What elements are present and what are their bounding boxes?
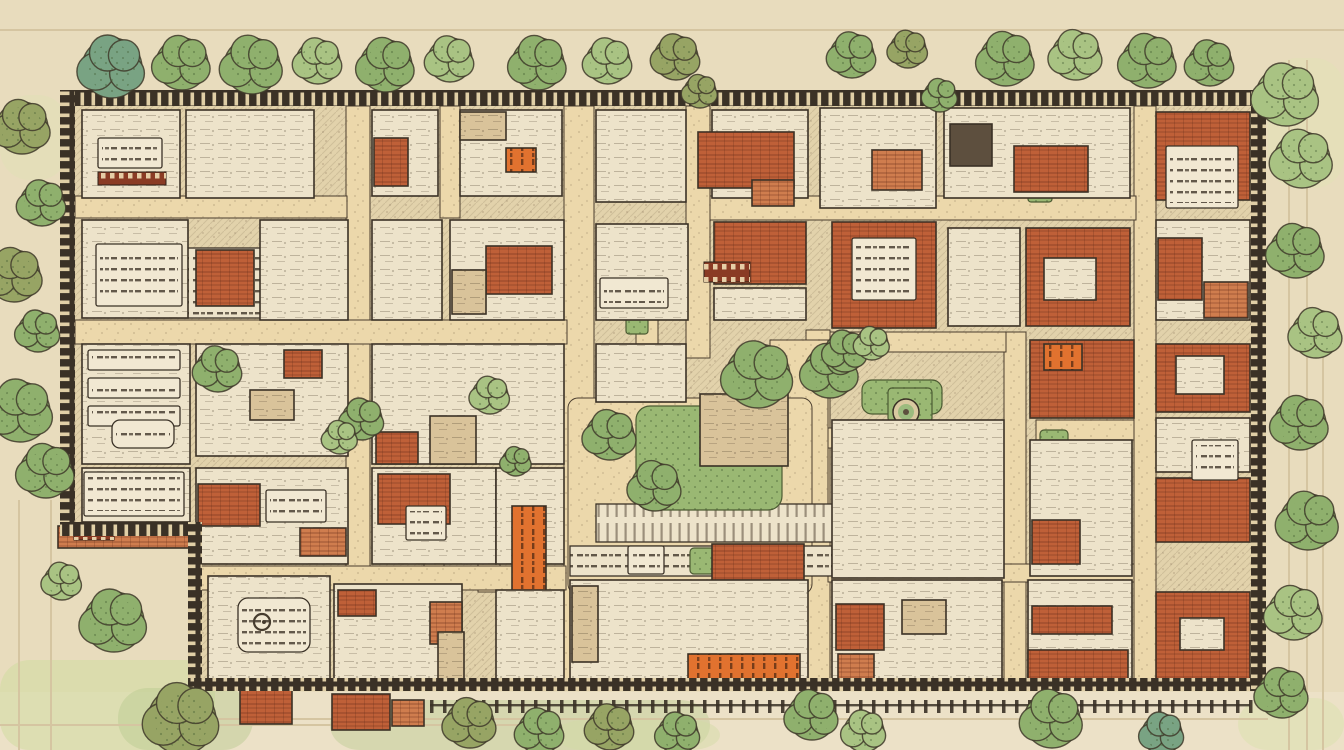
faint-road-line xyxy=(50,500,52,750)
texture-overlay xyxy=(430,416,476,464)
texture-overlay xyxy=(88,477,180,511)
texture-overlay xyxy=(506,148,536,172)
tree-stipple xyxy=(24,186,59,221)
fence-post xyxy=(1158,700,1162,713)
fence-post xyxy=(924,700,928,713)
fountain-pond-core xyxy=(903,409,909,415)
texture-overlay xyxy=(714,288,806,320)
fence-post xyxy=(521,700,525,713)
texture-overlay xyxy=(856,243,912,295)
texture-overlay xyxy=(100,249,178,301)
texture-overlay xyxy=(452,270,486,314)
fence-post xyxy=(638,700,642,713)
tree-stipple xyxy=(161,43,203,85)
texture-overlay xyxy=(836,604,884,650)
texture-overlay xyxy=(270,495,322,517)
tree-stipple xyxy=(1280,138,1325,183)
tree-stipple xyxy=(230,44,275,89)
tree-stipple xyxy=(590,44,625,79)
tree-stipple xyxy=(327,425,353,451)
texture-overlay xyxy=(1028,650,1128,680)
texture-overlay xyxy=(1176,356,1224,394)
texture-overlay xyxy=(198,484,260,526)
fence-post xyxy=(1184,700,1188,713)
texture-overlay xyxy=(460,112,506,140)
texture-overlay xyxy=(438,632,464,680)
plaque-emblem-dot xyxy=(262,620,266,624)
tree-stipple xyxy=(793,697,831,735)
building-dark xyxy=(950,124,992,166)
texture-overlay xyxy=(92,355,176,365)
tree-stipple xyxy=(1057,37,1095,75)
tree-stipple xyxy=(505,451,527,473)
fence-post xyxy=(950,700,954,713)
texture-overlay xyxy=(1251,90,1266,691)
fence-post xyxy=(1015,700,1019,713)
fence-post xyxy=(651,700,655,713)
fence-post xyxy=(690,700,694,713)
fence-rail xyxy=(430,704,1250,706)
tree xyxy=(0,99,50,154)
texture-overlay xyxy=(1158,238,1202,300)
texture-overlay xyxy=(752,180,794,206)
tree-stipple xyxy=(894,36,923,65)
texture-overlay xyxy=(188,522,202,692)
texture-overlay xyxy=(1044,258,1096,300)
tree-stipple xyxy=(662,718,694,750)
texture-overlay xyxy=(572,586,598,662)
fence-post xyxy=(1236,700,1240,713)
fence-post xyxy=(781,700,785,713)
texture-overlay xyxy=(1014,146,1088,192)
fence-post xyxy=(911,700,915,713)
tree-stipple xyxy=(1127,41,1169,83)
tree-stipple xyxy=(155,693,209,747)
fence-post xyxy=(495,700,499,713)
texture-overlay xyxy=(92,383,176,393)
fence-post xyxy=(703,700,707,713)
fence-post xyxy=(664,700,668,713)
tree-stipple xyxy=(300,44,335,79)
texture-overlay xyxy=(98,172,166,185)
texture-overlay xyxy=(948,228,1020,326)
tree-stipple xyxy=(1030,698,1075,743)
fence-post xyxy=(508,700,512,713)
texture-overlay xyxy=(902,600,946,634)
fence-post xyxy=(1080,700,1084,713)
tree-stipple xyxy=(90,598,138,646)
texture-overlay xyxy=(838,654,874,680)
texture-overlay xyxy=(186,110,314,198)
fence-post xyxy=(560,700,564,713)
fence-post xyxy=(846,700,850,713)
fence-post xyxy=(937,700,941,713)
fence-post xyxy=(573,700,577,713)
texture-overlay xyxy=(1032,606,1112,634)
tree-stipple xyxy=(1263,675,1301,713)
texture-overlay xyxy=(242,603,306,647)
fence-post xyxy=(742,700,746,713)
texture-overlay xyxy=(102,143,158,163)
tree-stipple xyxy=(859,331,885,357)
fence-post xyxy=(1210,700,1214,713)
fence-post xyxy=(430,700,434,713)
texture-overlay xyxy=(440,106,460,218)
fence-post xyxy=(1093,700,1097,713)
tree-stipple xyxy=(1297,315,1335,353)
village-site-plan xyxy=(0,0,1344,750)
fence-post xyxy=(1119,700,1123,713)
texture-overlay xyxy=(60,522,202,536)
fence-post xyxy=(755,700,759,713)
texture-overlay xyxy=(300,528,346,556)
texture-overlay xyxy=(284,350,322,378)
tree-stipple xyxy=(591,417,629,455)
tree-stipple xyxy=(1146,718,1178,750)
fence-post xyxy=(729,700,733,713)
texture-overlay xyxy=(372,220,442,320)
texture-overlay xyxy=(75,196,347,218)
faint-road-line xyxy=(0,29,1344,31)
texture-overlay xyxy=(712,544,804,582)
texture-overlay xyxy=(496,590,564,688)
texture-overlay xyxy=(1032,520,1080,564)
tree-stipple xyxy=(365,45,407,87)
fence-post xyxy=(1223,700,1227,713)
fence-post xyxy=(963,700,967,713)
texture-overlay xyxy=(832,420,1004,578)
tree-stipple xyxy=(48,568,77,597)
texture-overlay xyxy=(1004,332,1026,690)
texture-overlay xyxy=(486,246,552,294)
fence-post xyxy=(716,700,720,713)
texture-overlay xyxy=(188,678,1266,691)
texture-overlay xyxy=(604,283,664,303)
fence-post xyxy=(768,700,772,713)
tree-stipple xyxy=(200,352,235,387)
tree-stipple xyxy=(1286,500,1331,545)
tree-stipple xyxy=(848,716,880,748)
tree-stipple xyxy=(451,705,489,743)
texture-overlay xyxy=(512,506,546,592)
tree-stipple xyxy=(517,43,559,85)
tree-stipple xyxy=(636,468,674,506)
tree-stipple xyxy=(687,79,713,105)
texture-overlay xyxy=(1180,618,1224,650)
tree-stipple xyxy=(658,40,693,75)
tree-stipple xyxy=(22,316,54,348)
fence-post xyxy=(1145,700,1149,713)
texture-overlay xyxy=(332,694,390,730)
tree-stipple xyxy=(1279,403,1321,445)
fence-post xyxy=(1002,700,1006,713)
texture-overlay xyxy=(260,220,348,320)
texture-overlay xyxy=(250,390,294,420)
fence-post xyxy=(989,700,993,713)
texture-overlay xyxy=(1170,151,1234,203)
faint-road-line xyxy=(18,500,20,750)
texture-overlay xyxy=(632,551,660,569)
tree-stipple xyxy=(592,710,627,745)
tree-stipple xyxy=(732,350,783,401)
texture-overlay xyxy=(596,110,686,202)
fence-post xyxy=(443,700,447,713)
texture-overlay xyxy=(1196,445,1234,475)
texture-overlay xyxy=(240,690,292,724)
fence-post xyxy=(1171,700,1175,713)
texture-overlay xyxy=(338,590,376,616)
fence-post xyxy=(677,700,681,713)
tree-stipple xyxy=(1273,593,1315,635)
fence-post xyxy=(586,700,590,713)
fence-post xyxy=(1106,700,1110,713)
tree-stipple xyxy=(476,382,505,411)
tree-stipple xyxy=(985,39,1027,81)
texture-overlay xyxy=(704,262,750,282)
texture-overlay xyxy=(374,138,408,186)
fence-post xyxy=(898,700,902,713)
fence-post xyxy=(885,700,889,713)
texture-overlay xyxy=(1204,282,1248,318)
texture-overlay xyxy=(1044,344,1082,370)
fence-post xyxy=(1249,700,1253,713)
texture-overlay xyxy=(410,511,442,535)
texture-overlay xyxy=(872,150,922,190)
screenshot-root xyxy=(0,0,1344,750)
texture-overlay xyxy=(1134,106,1156,690)
tree-stipple xyxy=(88,44,136,92)
tree-stipple xyxy=(432,42,467,77)
texture-overlay xyxy=(392,700,424,726)
texture-overlay xyxy=(75,320,567,344)
tree-stipple xyxy=(522,714,557,749)
tree-stipple xyxy=(1275,231,1317,273)
texture-overlay xyxy=(196,250,254,306)
tree-stipple xyxy=(25,451,67,493)
fence-post xyxy=(872,700,876,713)
tree-stipple xyxy=(1192,46,1227,81)
texture-overlay xyxy=(1156,478,1250,542)
tree-stipple xyxy=(834,38,869,73)
fence-post xyxy=(1197,700,1201,713)
texture-overlay xyxy=(376,432,418,464)
fence-post xyxy=(1132,700,1136,713)
tree-stipple xyxy=(1262,72,1310,120)
fence-post xyxy=(976,700,980,713)
tree-stipple xyxy=(927,83,953,109)
tree-stipple xyxy=(1,107,43,149)
texture-overlay xyxy=(596,344,686,402)
texture-overlay xyxy=(116,425,170,443)
